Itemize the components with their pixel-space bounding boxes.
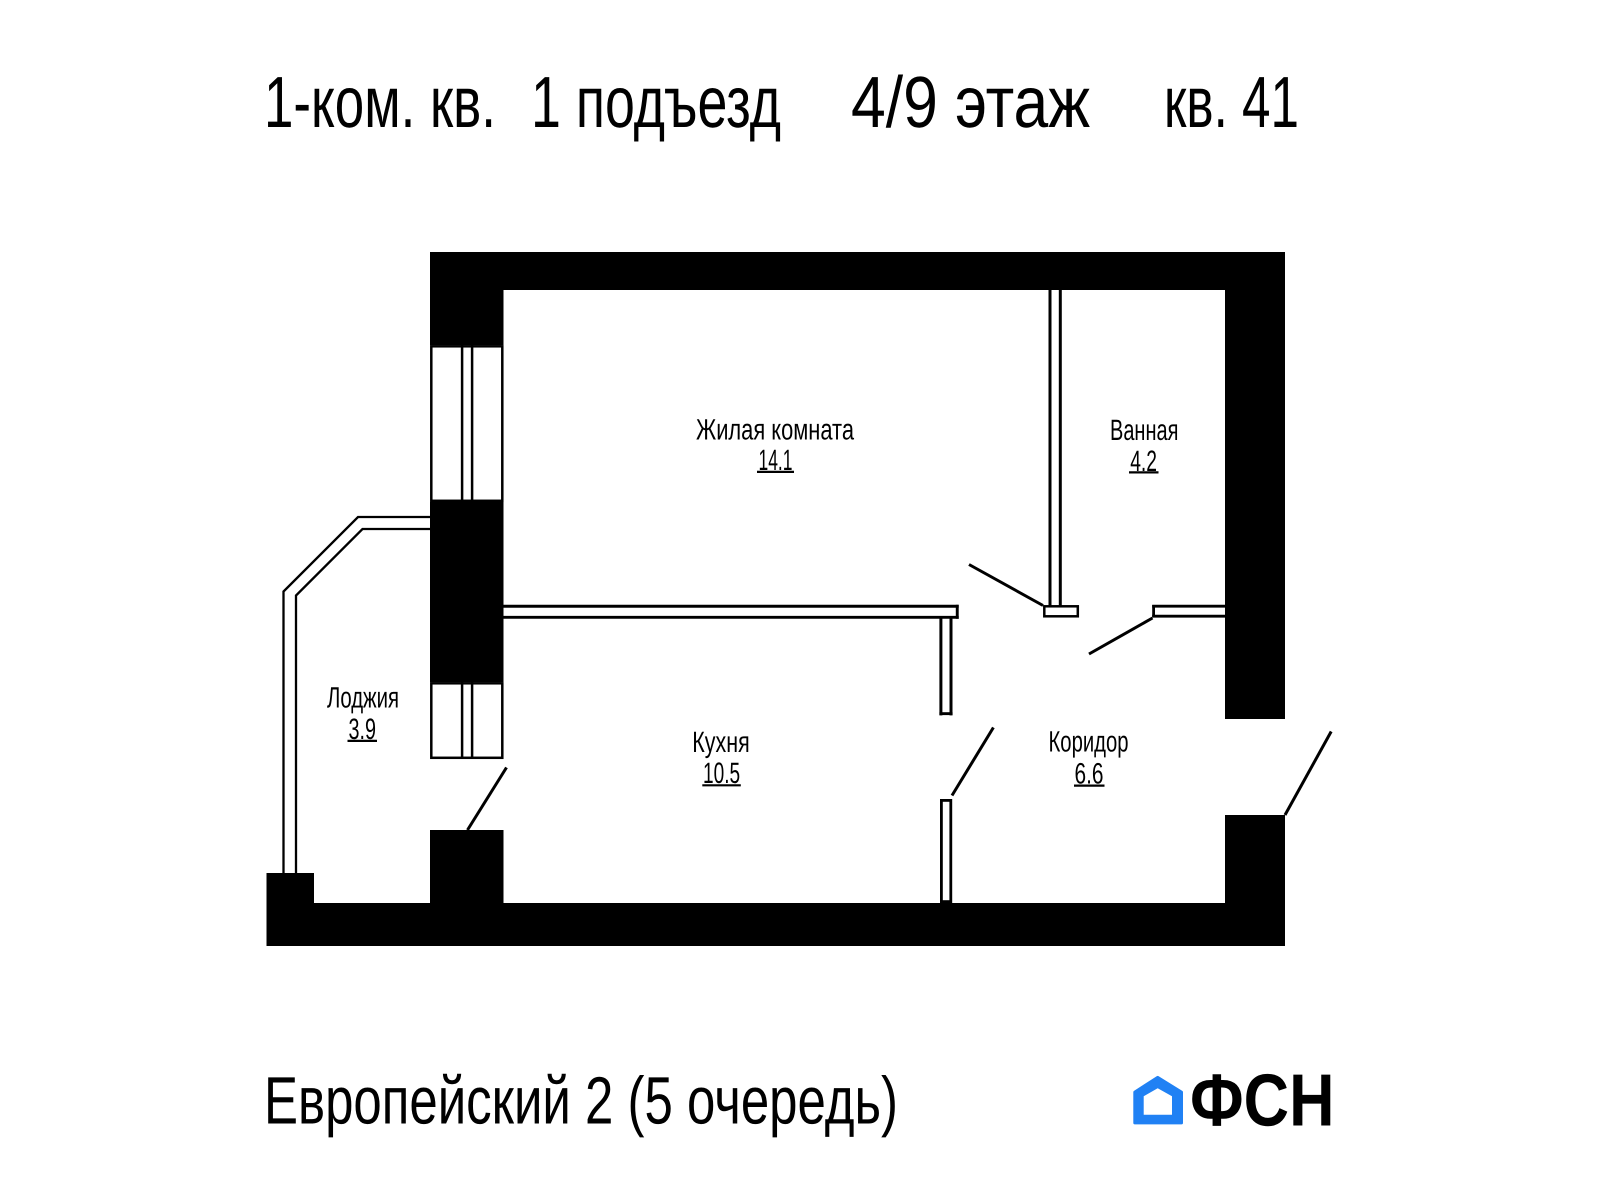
svg-text:Жилая комната: Жилая комната [696, 414, 854, 447]
svg-text:Лоджия: Лоджия [327, 682, 399, 715]
svg-text:1-ком. кв.: 1-ком. кв. [264, 62, 496, 143]
svg-text:1 подъезд: 1 подъезд [531, 62, 781, 143]
svg-text:Ванная: Ванная [1110, 414, 1178, 447]
svg-text:Европейский 2 (5 очередь): Европейский 2 (5 очередь) [264, 1064, 898, 1139]
svg-text:4/9 этаж: 4/9 этаж [851, 62, 1090, 143]
svg-text:ФСН: ФСН [1190, 1058, 1335, 1141]
svg-text:кв. 41: кв. 41 [1164, 62, 1299, 143]
svg-text:Коридор: Коридор [1049, 726, 1129, 759]
svg-text:Кухня: Кухня [692, 726, 749, 759]
